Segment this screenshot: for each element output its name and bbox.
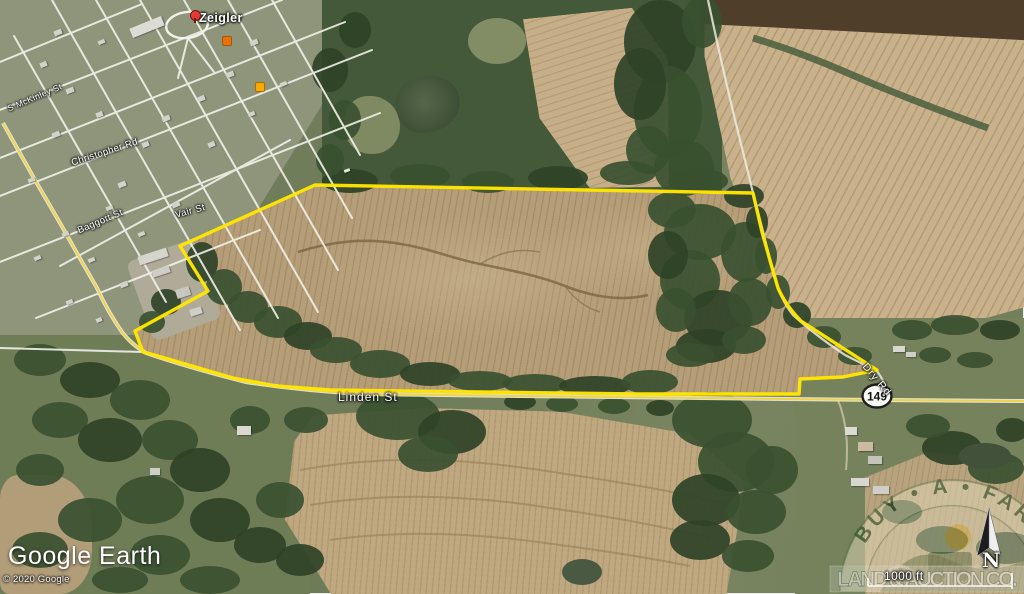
- street-line: [188, 38, 214, 72]
- tree-blob: [180, 566, 240, 594]
- tree-blob: [656, 288, 696, 332]
- farm-driveway: [838, 400, 847, 470]
- tree-blob: [919, 347, 951, 363]
- tree-blob: [170, 448, 230, 492]
- street-line: [178, 38, 188, 78]
- tree-blob: [648, 192, 696, 228]
- building: [873, 486, 889, 494]
- place-pin-icon[interactable]: [190, 10, 201, 21]
- tree-blob: [78, 418, 142, 462]
- map-canvas[interactable]: 149 Zeigler S McKinley St Christopher Rd…: [0, 0, 1024, 594]
- waterway-strip: [753, 38, 988, 128]
- tree-blob: [256, 482, 304, 518]
- poi-icon[interactable]: [255, 82, 265, 92]
- tree-blob: [648, 231, 688, 279]
- building: [845, 427, 857, 435]
- tree-blob: [722, 326, 766, 354]
- tree-blob: [60, 362, 120, 398]
- tree-blob: [724, 184, 764, 208]
- tree-blob: [316, 144, 344, 176]
- tree-blob: [276, 544, 324, 576]
- building: [858, 442, 873, 451]
- pond-small: [959, 443, 1011, 469]
- map-vector-overlay: 149: [0, 0, 1024, 594]
- town-label: Zeigler: [199, 11, 243, 25]
- tree-blob: [58, 498, 122, 542]
- poi-icon[interactable]: [222, 36, 232, 46]
- tree-blob: [116, 476, 184, 524]
- building: [893, 346, 905, 352]
- pond-small: [562, 559, 602, 585]
- tree-blob: [598, 398, 630, 414]
- google-earth-logo: Google Earth: [8, 542, 161, 571]
- tree-blob: [980, 320, 1020, 340]
- street-line: [96, 0, 278, 318]
- tree-blob: [892, 320, 932, 340]
- tree-blob: [722, 540, 774, 572]
- main-road-casing: [3, 123, 1024, 401]
- highway-route-line: [3, 123, 1024, 401]
- tree-blob: [906, 414, 950, 438]
- tree-blob: [32, 402, 88, 438]
- tree-blob: [448, 371, 512, 391]
- tree-blob: [312, 48, 348, 92]
- creek-branch: [480, 251, 600, 313]
- street-line: [184, 0, 338, 270]
- tree-blob: [110, 380, 170, 420]
- creek: [298, 241, 648, 298]
- building: [237, 426, 251, 435]
- tree-blob: [528, 166, 588, 190]
- tree-blob: [284, 407, 328, 433]
- field-contours: [300, 460, 730, 566]
- scale-label: 1000 ft: [884, 569, 924, 583]
- building: [868, 456, 882, 464]
- street-label-linden: Linden St: [338, 390, 398, 404]
- street-line: [0, 50, 372, 196]
- tree-blob: [666, 343, 714, 367]
- tree-blob: [746, 446, 798, 494]
- tree-blob: [626, 126, 670, 174]
- copyright-notice: © 2020 Google: [3, 574, 70, 585]
- tree-blob: [622, 370, 678, 394]
- tree-blob: [728, 278, 772, 326]
- tree-blob: [670, 520, 730, 560]
- tree-blob: [726, 490, 786, 534]
- tree-blob: [882, 500, 922, 524]
- tree-blob: [329, 100, 361, 140]
- tree-blob: [646, 400, 674, 416]
- tree-blob: [614, 48, 666, 120]
- tree-blob: [957, 352, 993, 368]
- tree-blob: [16, 454, 64, 486]
- tree-blob: [339, 12, 371, 48]
- building: [906, 352, 916, 357]
- building: [150, 468, 160, 475]
- tree-blob: [931, 315, 979, 335]
- building: [851, 478, 869, 486]
- tree-blob: [398, 436, 458, 472]
- north-label: N: [982, 548, 1001, 572]
- tree-blob: [996, 418, 1024, 442]
- tree-blob: [390, 164, 450, 188]
- tree-blob: [916, 526, 968, 554]
